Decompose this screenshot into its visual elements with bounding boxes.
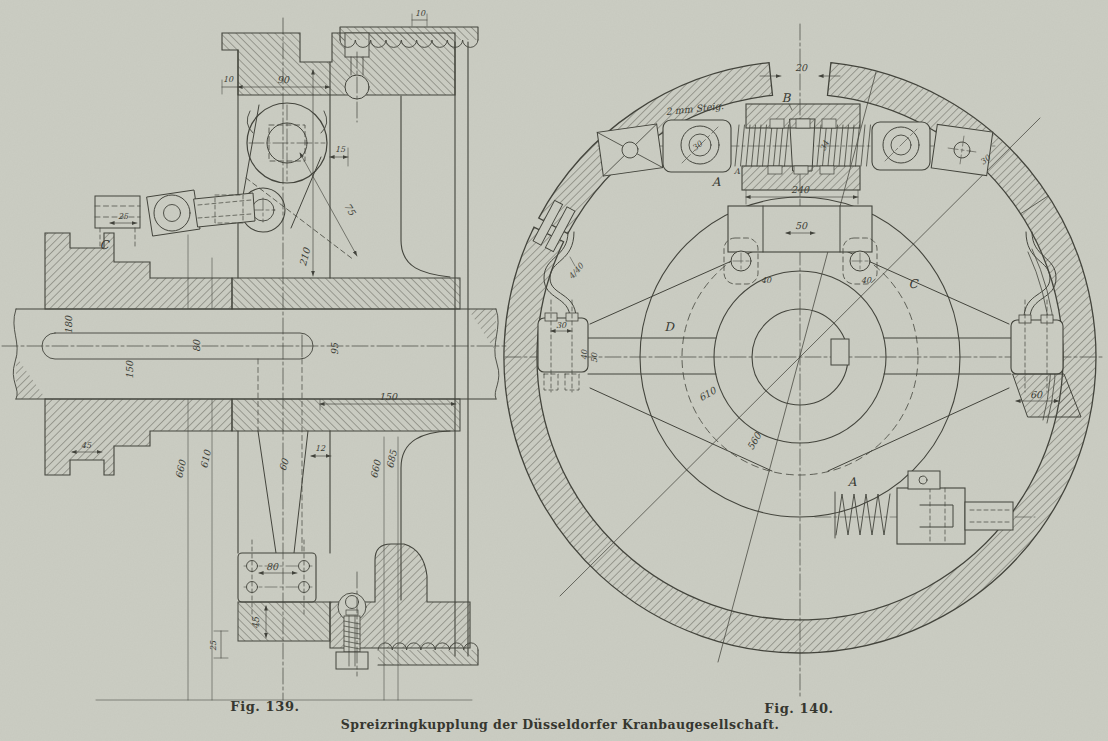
technical-drawing: 10 90 10 15 75 25 210 180 150 80 95 45 6…: [0, 0, 1108, 741]
book-page: 10 90 10 15 75 25 210 180 150 80 95 45 6…: [0, 0, 1108, 741]
paper-grain-overlay: [0, 0, 1108, 741]
